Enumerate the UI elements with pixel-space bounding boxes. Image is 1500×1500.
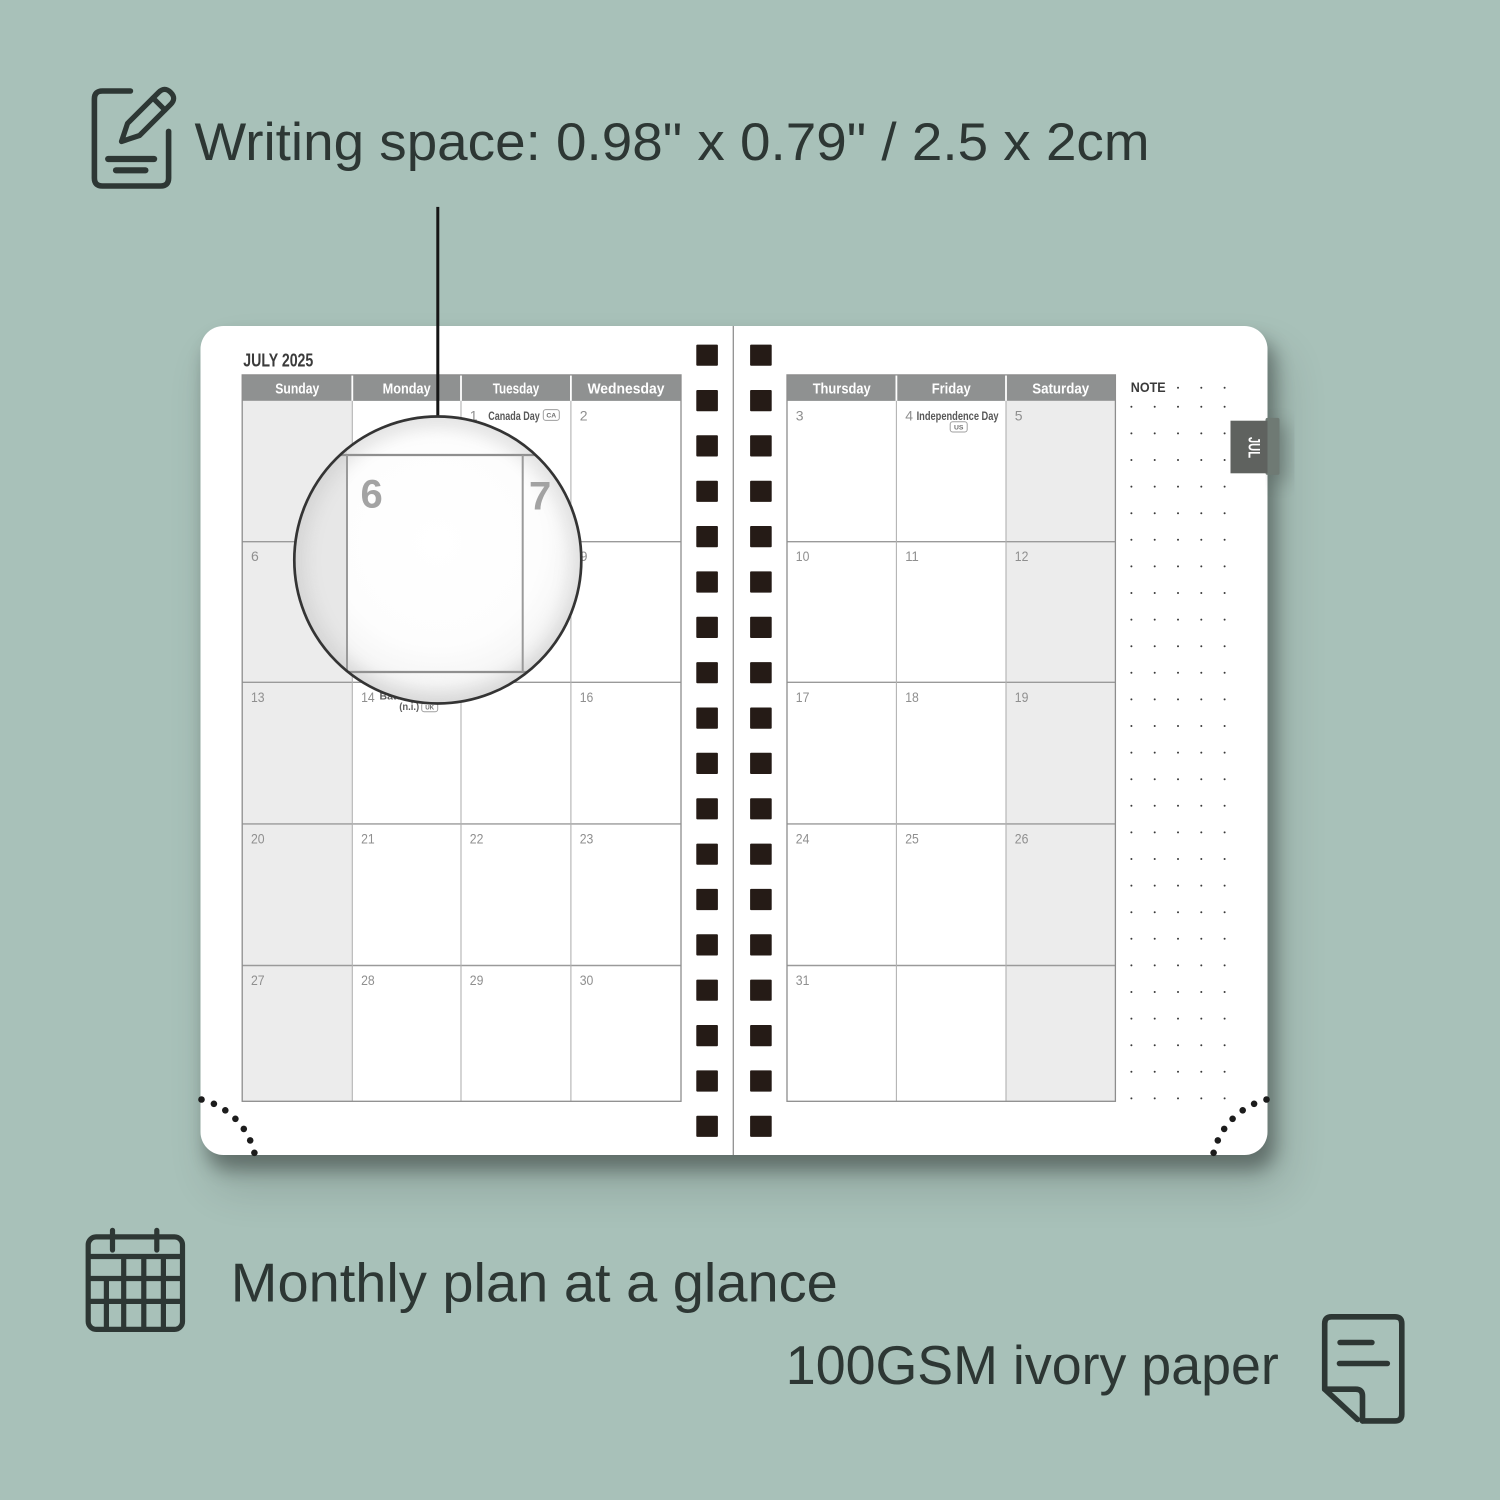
svg-text:31: 31 <box>796 972 810 988</box>
svg-text:25: 25 <box>905 830 919 846</box>
svg-text:3: 3 <box>796 407 804 423</box>
svg-text:22: 22 <box>470 830 484 846</box>
svg-text:10: 10 <box>796 548 810 564</box>
svg-text:18: 18 <box>905 689 919 705</box>
svg-text:Wednesday: Wednesday <box>587 380 665 397</box>
svg-text:US: US <box>954 425 964 432</box>
svg-text:16: 16 <box>580 689 594 705</box>
svg-text:11: 11 <box>905 548 919 564</box>
svg-text:13: 13 <box>251 689 265 705</box>
svg-text:2: 2 <box>580 407 588 423</box>
svg-text:6: 6 <box>251 548 259 564</box>
svg-text:Friday: Friday <box>932 380 971 397</box>
svg-text:4: 4 <box>905 407 913 423</box>
svg-text:Independence Day: Independence Day <box>917 409 999 423</box>
svg-text:Sunday: Sunday <box>275 380 319 397</box>
svg-text:26: 26 <box>1015 830 1029 846</box>
svg-text:JULY 2025: JULY 2025 <box>243 350 313 371</box>
svg-text:29: 29 <box>470 972 484 988</box>
svg-text:100GSM ivory paper: 100GSM ivory paper <box>786 1334 1279 1396</box>
svg-text:17: 17 <box>796 689 810 705</box>
svg-text:Thursday: Thursday <box>813 380 871 397</box>
svg-text:20: 20 <box>251 830 265 846</box>
svg-text:Tuesday: Tuesday <box>493 380 540 397</box>
svg-text:5: 5 <box>1015 407 1023 423</box>
svg-text:Monthly plan at a glance: Monthly plan at a glance <box>231 1252 838 1314</box>
svg-text:30: 30 <box>580 972 594 988</box>
svg-text:Canada Day: Canada Day <box>488 409 540 423</box>
svg-text:27: 27 <box>251 972 265 988</box>
svg-text:24: 24 <box>796 830 810 846</box>
svg-text:Monday: Monday <box>383 380 431 397</box>
svg-text:28: 28 <box>361 972 375 988</box>
svg-text:NOTE: NOTE <box>1131 379 1166 395</box>
svg-text:21: 21 <box>361 830 375 846</box>
svg-text:(n.i.): (n.i.) <box>399 702 419 713</box>
svg-text:UK: UK <box>425 704 434 711</box>
svg-text:JUL: JUL <box>1245 437 1263 458</box>
svg-text:CA: CA <box>546 413 556 420</box>
svg-text:19: 19 <box>1015 689 1029 705</box>
svg-text:14: 14 <box>361 689 375 705</box>
svg-text:Writing space: 0.98" x 0.79" /: Writing space: 0.98" x 0.79" / 2.5 x 2cm <box>195 113 1150 172</box>
svg-text:Saturday: Saturday <box>1032 380 1089 397</box>
svg-text:12: 12 <box>1015 548 1029 564</box>
svg-text:6: 6 <box>361 473 383 517</box>
svg-text:23: 23 <box>580 830 594 846</box>
